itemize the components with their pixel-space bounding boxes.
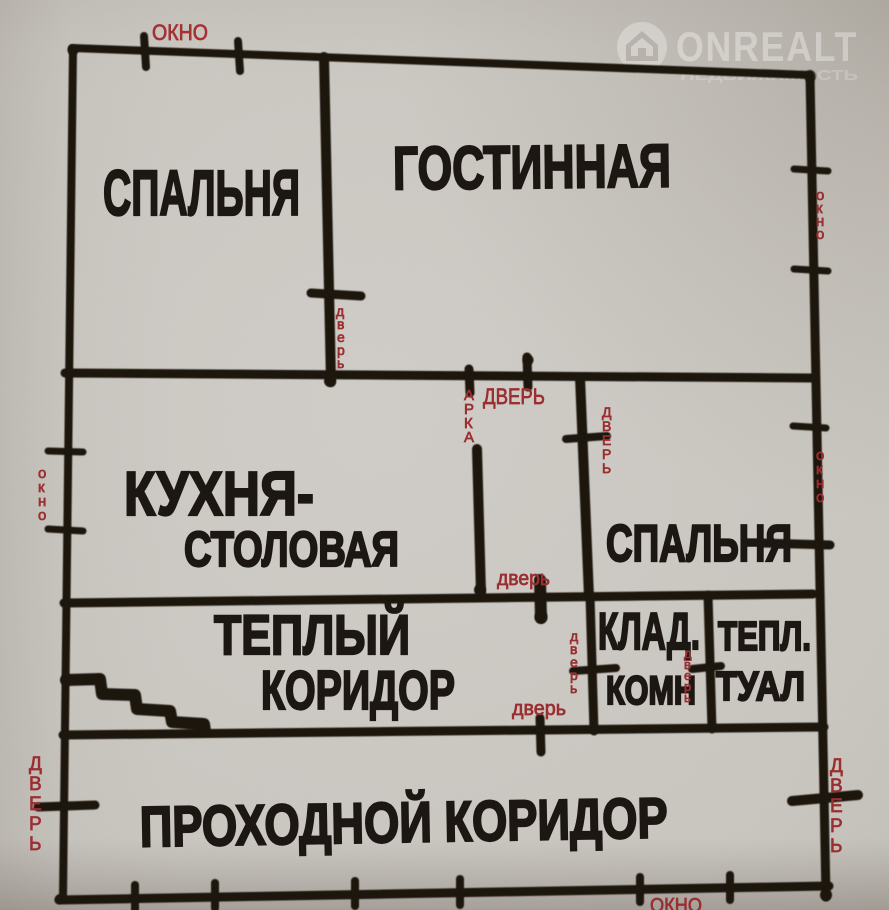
svg-text:ДВЕРЬ: ДВЕРЬ <box>29 754 42 855</box>
svg-text:ДВЕРЬ: ДВЕРЬ <box>602 404 612 476</box>
svg-text:ОКНО: ОКНО <box>650 895 702 910</box>
svg-text:ТУАЛ: ТУАЛ <box>716 663 805 709</box>
svg-text:СПАЛЬНЯ: СПАЛЬНЯ <box>103 157 300 229</box>
svg-text:КОРИДОР: КОРИДОР <box>261 659 455 721</box>
svg-text:ONREALT: ONREALT <box>676 23 858 70</box>
svg-text:дверь: дверь <box>336 303 345 371</box>
svg-text:дверь: дверь <box>512 698 566 720</box>
svg-text:КОМН: КОМН <box>606 669 696 713</box>
svg-text:АРКА: АРКА <box>464 387 474 446</box>
svg-text:дверь: дверь <box>570 628 578 696</box>
svg-text:СТОЛОВАЯ: СТОЛОВАЯ <box>184 523 399 577</box>
svg-text:СПАЛЬНЯ: СПАЛЬНЯ <box>606 515 792 573</box>
svg-text:ТЕПЛ.: ТЕПЛ. <box>718 613 811 659</box>
svg-text:ДВЕРЬ: ДВЕРЬ <box>483 384 545 409</box>
svg-text:ПРОХОДНОЙ КОРИДОР: ПРОХОДНОЙ КОРИДОР <box>139 785 668 859</box>
svg-text:ДВЕРЬ: ДВЕРЬ <box>830 756 843 857</box>
svg-text:ОКНО: ОКНО <box>152 20 208 45</box>
svg-text:ТЕПЛЫЙ: ТЕПЛЫЙ <box>214 603 410 666</box>
svg-text:окно: окно <box>816 187 824 243</box>
svg-text:КУХНЯ-: КУХНЯ- <box>124 460 314 529</box>
svg-text:окно: окно <box>38 465 46 524</box>
svg-text:дверь: дверь <box>497 568 550 590</box>
svg-text:окно: окно <box>816 447 824 506</box>
svg-text:ГОСТИННАЯ: ГОСТИННАЯ <box>393 132 672 203</box>
